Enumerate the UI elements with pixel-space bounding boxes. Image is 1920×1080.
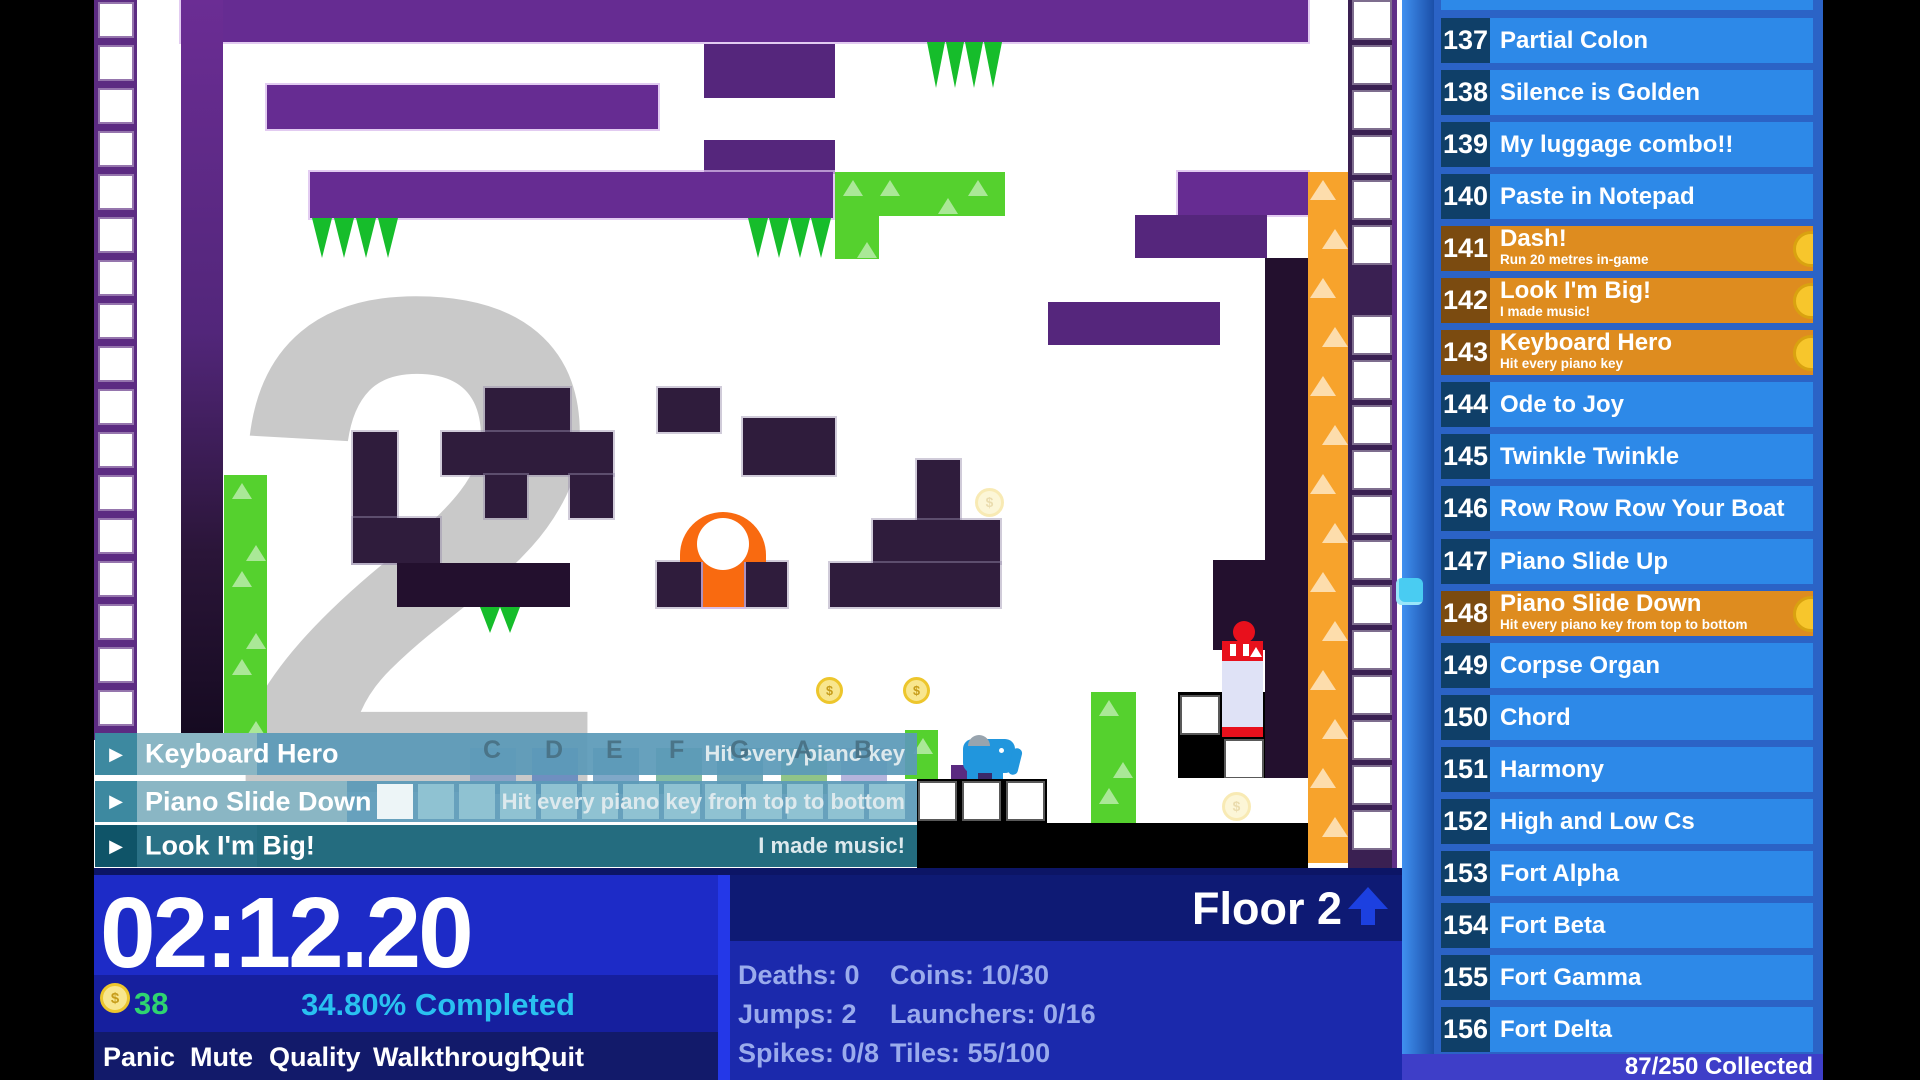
menu-item-walkthrough[interactable]: Walkthrough xyxy=(373,1042,537,1073)
coin-icon: $ xyxy=(100,983,130,1013)
achievement-row-143[interactable]: Keyboard HeroHit every piano key143 xyxy=(1441,330,1813,375)
achievement-title: Fort Alpha xyxy=(1500,860,1619,888)
achievement-row-152[interactable]: High and Low Cs152 xyxy=(1441,799,1813,844)
achievement-row-149[interactable]: Corpse Organ149 xyxy=(1441,643,1813,688)
achievement-row-150[interactable]: Chord150 xyxy=(1441,695,1813,740)
launcher-column xyxy=(1308,172,1352,863)
achievement-title: Fort Beta xyxy=(1500,912,1605,940)
achievement-number: 139 xyxy=(1441,122,1490,167)
purple-column xyxy=(181,0,223,738)
achievement-title: Fort Delta xyxy=(1500,1016,1612,1044)
achievement-title: Dash! xyxy=(1500,226,1567,253)
achievement-row-146[interactable]: Row Row Row Your Boat146 xyxy=(1441,486,1813,531)
achievement-number: 141 xyxy=(1441,226,1490,271)
coin-counter: 38 xyxy=(134,986,168,1022)
elephant-ear xyxy=(968,735,990,746)
achievement-title: High and Low Cs xyxy=(1500,808,1695,836)
achievement-row-148[interactable]: Piano Slide DownHit every piano key from… xyxy=(1441,591,1813,636)
achievement-row-147[interactable]: Piano Slide Up147 xyxy=(1441,539,1813,584)
achievement-row-153[interactable]: Fort Alpha153 xyxy=(1441,851,1813,896)
elephant-eye xyxy=(999,748,1004,753)
achievement-number: 146 xyxy=(1441,486,1490,531)
game-screen: 2 $$$$ xyxy=(0,0,1920,1080)
achievement-coin-icon xyxy=(1793,335,1813,371)
achievement-number: 152 xyxy=(1441,799,1490,844)
achievement-row-141[interactable]: Dash!Run 20 metres in-game141 xyxy=(1441,226,1813,271)
completion-percent: 34.80% Completed xyxy=(301,987,575,1023)
achievement-title: Keyboard Hero xyxy=(1500,330,1672,357)
hud-panel: 02:12.20 $ 38 34.80% Completed PanicMute… xyxy=(94,868,718,1080)
floor-label: Floor 2 xyxy=(1192,883,1342,935)
coin-icon: $ xyxy=(903,677,930,704)
tile-column-edge xyxy=(1392,0,1397,868)
achievement-number: 154 xyxy=(1441,903,1490,948)
achievement-row-155[interactable]: Fort Gamma155 xyxy=(1441,955,1813,1000)
menu-item-mute[interactable]: Mute xyxy=(190,1042,253,1073)
achievement-title: My luggage combo!! xyxy=(1500,131,1733,159)
achievement-title: Look I'm Big! xyxy=(1500,278,1651,305)
achievement-number: 140 xyxy=(1441,174,1490,219)
menu-item-quality[interactable]: Quality xyxy=(269,1042,361,1073)
achievement-title: Partial Colon xyxy=(1500,27,1648,55)
achievement-coin-icon xyxy=(1793,283,1813,319)
achievement-title: Piano Slide Up xyxy=(1500,548,1668,576)
menu-item-panic[interactable]: Panic xyxy=(103,1042,175,1073)
achievement-row-142[interactable]: Look I'm Big!I made music!142 xyxy=(1441,278,1813,323)
achievement-subtitle: Hit every piano key xyxy=(1500,356,1623,371)
achievement-number: 144 xyxy=(1441,382,1490,427)
achievement-number: 150 xyxy=(1441,695,1490,740)
achievement-number: 155 xyxy=(1441,955,1490,1000)
player-launcher-hole xyxy=(697,518,749,570)
floor-header: Floor 2 xyxy=(730,875,1402,941)
stat-spikes: Spikes: 0/8 xyxy=(738,1038,879,1069)
stat-jumps: Jumps: 2 xyxy=(738,999,857,1030)
achievement-number: 143 xyxy=(1441,330,1490,375)
achievement-title: Ode to Joy xyxy=(1500,391,1624,419)
level-viewport: 2 $$$$ xyxy=(94,0,1402,868)
achievement-title: Piano Slide Down xyxy=(1500,591,1701,618)
achievement-row-138[interactable]: Silence is Golden138 xyxy=(1441,70,1813,115)
collected-counter: 87/250 Collected xyxy=(1402,1054,1823,1080)
achievement-coin-icon xyxy=(1793,231,1813,267)
achievement-title: Corpse Organ xyxy=(1500,652,1660,680)
achievement-subtitle: I made music! xyxy=(1500,304,1590,319)
achievement-row-140[interactable]: Paste in Notepad140 xyxy=(1441,174,1813,219)
achievement-row-139[interactable]: My luggage combo!!139 xyxy=(1441,122,1813,167)
achievement-row-137[interactable]: Partial Colon137 xyxy=(1441,18,1813,63)
achievement-number: 148 xyxy=(1441,591,1490,636)
achievement-number: 156 xyxy=(1441,1007,1490,1052)
achievement-title: Harmony xyxy=(1500,756,1604,784)
achievement-sidebar[interactable]: Partial Colon137Silence is Golden138My l… xyxy=(1402,0,1823,1080)
achievement-coin-icon xyxy=(1793,596,1813,632)
hud-topline xyxy=(94,868,1402,875)
stat-launchers: Launchers: 0/16 xyxy=(890,999,1096,1030)
stat-coins: Coins: 10/30 xyxy=(890,960,1049,991)
achievement-row-144[interactable]: Ode to Joy144 xyxy=(1441,382,1813,427)
achievement-title: Chord xyxy=(1500,704,1571,732)
tile-column-left xyxy=(94,0,137,740)
achievement-title: Fort Gamma xyxy=(1500,964,1641,992)
stat-tiles: Tiles: 55/100 xyxy=(890,1038,1050,1069)
collected-coin-icon: $ xyxy=(1222,792,1251,821)
achievement-subtitle: Hit every piano key from top to bottom xyxy=(1500,617,1748,632)
achievement-title: Row Row Row Your Boat xyxy=(1500,495,1784,523)
achievement-number: 137 xyxy=(1441,18,1490,63)
speedrun-timer: 02:12.20 xyxy=(100,876,471,991)
current-position-marker-icon xyxy=(1396,578,1423,605)
achievement-number: 145 xyxy=(1441,434,1490,479)
achievement-number: 153 xyxy=(1441,851,1490,896)
collected-coin-icon: $ xyxy=(975,488,1004,517)
menu-item-quit[interactable]: Quit xyxy=(530,1042,584,1073)
achievement-row-156[interactable]: Fort Delta156 xyxy=(1441,1007,1813,1052)
achievement-title: Twinkle Twinkle xyxy=(1500,443,1679,471)
stats-panel: Floor 2 Deaths: 0Jumps: 2Spikes: 0/8Coin… xyxy=(730,868,1402,1080)
achievement-row-151[interactable]: Harmony151 xyxy=(1441,747,1813,792)
achievement-title: Paste in Notepad xyxy=(1500,183,1695,211)
hud-divider xyxy=(718,868,730,1080)
achievement-subtitle: Run 20 metres in-game xyxy=(1500,252,1649,267)
achievement-number: 149 xyxy=(1441,643,1490,688)
tile-column-right xyxy=(1348,0,1397,868)
achievement-number: 142 xyxy=(1441,278,1490,323)
menu-bar: PanicMuteQualityWalkthroughQuit xyxy=(94,1032,718,1080)
stat-deaths: Deaths: 0 xyxy=(738,960,860,991)
achievement-number: 138 xyxy=(1441,70,1490,115)
achievement-number: 147 xyxy=(1441,539,1490,584)
achievement-number: 151 xyxy=(1441,747,1490,792)
achievement-row-154[interactable]: Fort Beta154 xyxy=(1441,903,1813,948)
sidebar-scroll-strip[interactable] xyxy=(1402,0,1434,1080)
coin-icon: $ xyxy=(816,677,843,704)
achievement-title: Silence is Golden xyxy=(1500,79,1700,107)
achievement-row-145[interactable]: Twinkle Twinkle145 xyxy=(1441,434,1813,479)
